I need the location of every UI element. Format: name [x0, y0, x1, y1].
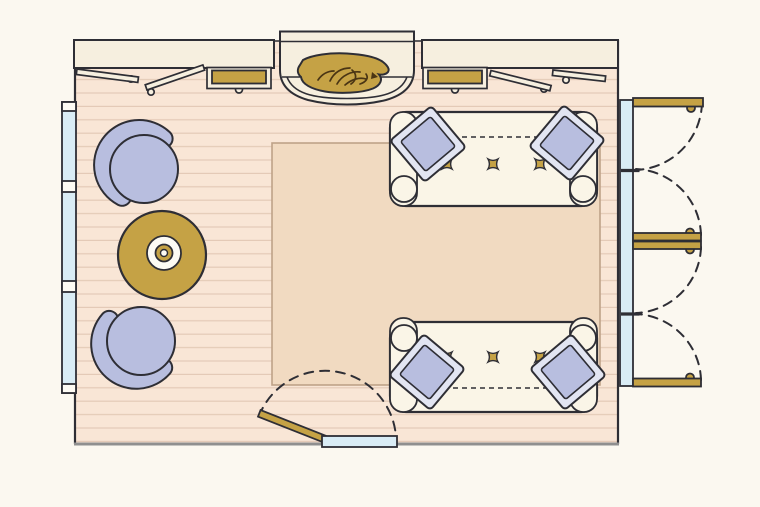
floor-plan-canvas [0, 0, 760, 507]
fireplace [280, 32, 414, 105]
drawer [428, 71, 482, 84]
cabinet-body [422, 40, 618, 68]
tufting-button [535, 159, 545, 169]
door-opening [322, 436, 397, 447]
chair-seat [107, 307, 175, 375]
window-mullion [62, 281, 76, 292]
door-swing-arc [636, 103, 702, 170]
table-ring-hole [161, 250, 168, 257]
sofa-top [390, 105, 605, 206]
sofa-bottom [389, 318, 606, 412]
chair-seat [110, 135, 178, 203]
door-swing-arc [636, 314, 701, 380]
door-sidelight-glass [620, 100, 633, 386]
door-panel [633, 233, 701, 241]
firebox [298, 53, 389, 93]
tufting-button [488, 352, 498, 362]
window-left [62, 102, 76, 393]
arm-roll-right [570, 176, 596, 202]
arm-roll-left [391, 176, 417, 202]
door-swing-arc [636, 247, 701, 313]
floor-plan-drawing [0, 0, 760, 507]
drawer [212, 71, 266, 84]
armchair-bottom [100, 307, 175, 380]
armchair-top [103, 129, 178, 203]
window-frame-cap [62, 102, 76, 111]
coffee-table [118, 211, 206, 299]
door-panel [633, 98, 703, 107]
window-frame-cap [62, 384, 76, 393]
window-mullion [62, 181, 76, 192]
cabinet-body [74, 40, 274, 68]
window-glass [62, 102, 76, 393]
tufting-button [488, 159, 498, 169]
door-panel [633, 242, 701, 250]
door-panel [633, 379, 701, 387]
french-doors-right [620, 98, 703, 387]
door-swing-arc [636, 169, 701, 235]
